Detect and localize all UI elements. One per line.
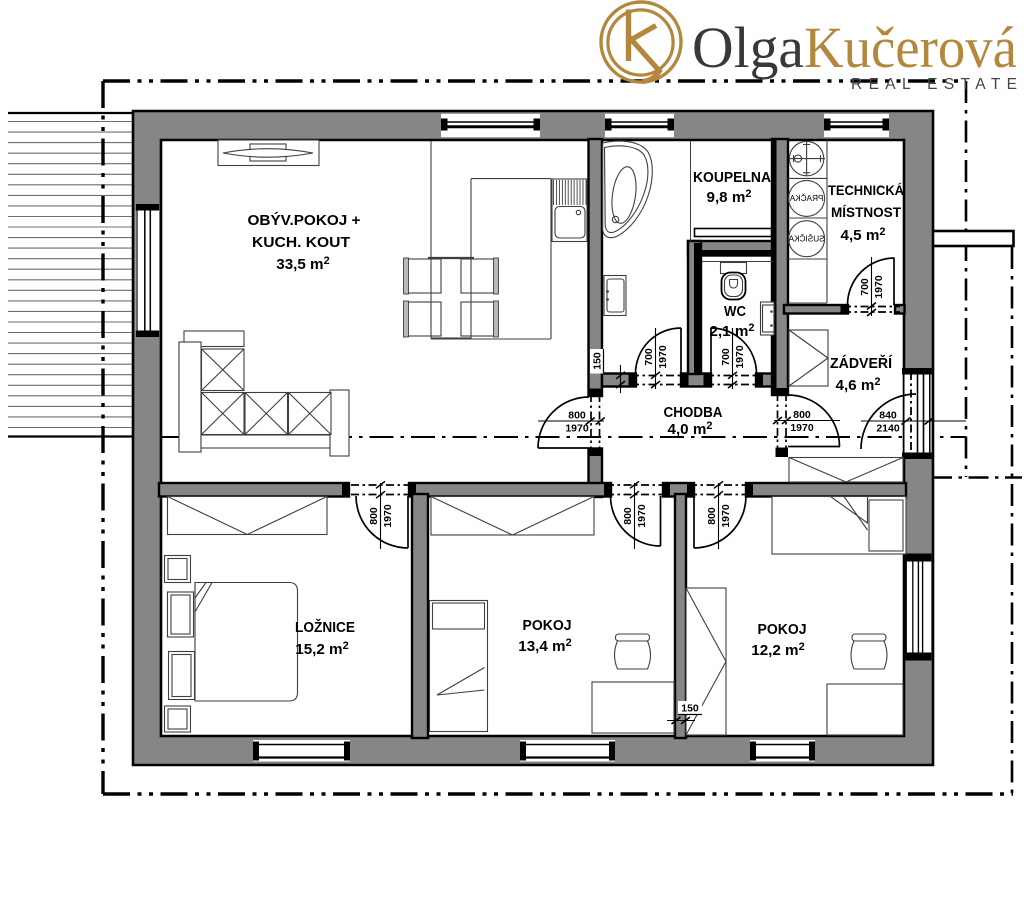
svg-text:WC: WC (724, 303, 746, 320)
svg-text:800: 800 (706, 507, 718, 525)
svg-text:800: 800 (568, 410, 586, 422)
svg-text:1970: 1970 (734, 345, 746, 369)
svg-text:MÍSTNOST: MÍSTNOST (831, 204, 901, 221)
svg-text:POKOJ: POKOJ (758, 621, 807, 638)
svg-text:800: 800 (793, 409, 811, 421)
svg-text:SUŠIČKA: SUŠIČKA (788, 234, 824, 244)
svg-text:1970: 1970 (873, 275, 885, 299)
svg-text:13,4 m2: 13,4 m2 (518, 637, 571, 655)
svg-text:KOUPELNA: KOUPELNA (693, 169, 771, 186)
svg-text:POKOJ: POKOJ (523, 617, 572, 634)
svg-text:33,5 m2: 33,5 m2 (276, 255, 329, 273)
svg-text:1970: 1970 (382, 504, 394, 528)
svg-text:1970: 1970 (657, 345, 669, 369)
svg-text:4,6 m2: 4,6 m2 (836, 376, 881, 394)
svg-text:CHODBA: CHODBA (664, 404, 723, 421)
svg-text:REAL ESTATE: REAL ESTATE (851, 76, 1017, 93)
svg-text:1970: 1970 (565, 423, 589, 435)
svg-text:PRAČKA: PRAČKA (789, 193, 823, 203)
svg-text:1970: 1970 (636, 504, 648, 528)
svg-text:ZÁDVEŘÍ: ZÁDVEŘÍ (830, 354, 893, 372)
svg-text:150: 150 (681, 703, 699, 715)
svg-text:15,2 m2: 15,2 m2 (295, 640, 348, 658)
svg-text:1970: 1970 (720, 504, 732, 528)
svg-text:TECHNICKÁ: TECHNICKÁ (828, 182, 904, 199)
svg-text:4,5 m2: 4,5 m2 (841, 226, 886, 244)
svg-text:2140: 2140 (876, 423, 900, 435)
svg-text:800: 800 (622, 507, 634, 525)
svg-text:700: 700 (720, 348, 732, 366)
svg-text:2,1 m2: 2,1 m2 (710, 322, 755, 340)
svg-text:700: 700 (643, 348, 655, 366)
svg-text:840: 840 (879, 410, 897, 422)
svg-text:150: 150 (592, 352, 604, 370)
svg-text:9,8 m2: 9,8 m2 (707, 188, 752, 206)
svg-text:700: 700 (859, 278, 871, 296)
svg-text:LOŽNICE: LOŽNICE (295, 618, 355, 636)
svg-text:800: 800 (368, 507, 380, 525)
svg-text:12,2 m2: 12,2 m2 (751, 641, 804, 659)
svg-text:OBÝV.POKOJ +: OBÝV.POKOJ + (248, 211, 361, 229)
svg-text:KUCH. KOUT: KUCH. KOUT (252, 234, 351, 251)
svg-text:1970: 1970 (790, 422, 814, 434)
svg-text:Kučerová: Kučerová (804, 15, 1017, 80)
svg-text:4,0 m2: 4,0 m2 (668, 420, 713, 438)
svg-text:Olga: Olga (692, 15, 804, 80)
